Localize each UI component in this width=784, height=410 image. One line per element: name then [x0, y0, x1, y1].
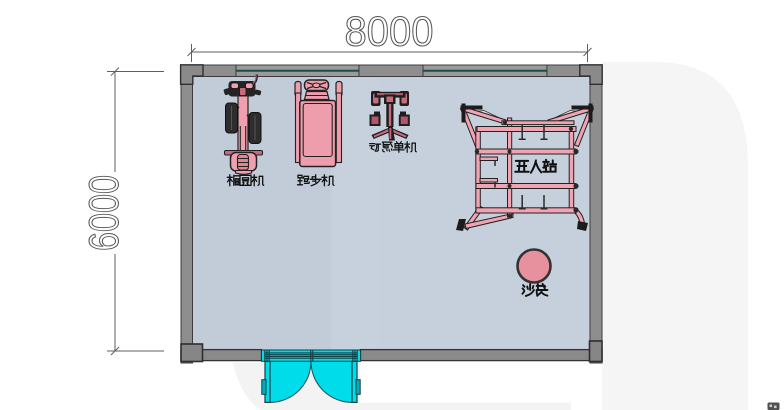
svg-text:8000: 8000 [345, 8, 434, 55]
svg-text:6000: 6000 [80, 175, 127, 251]
